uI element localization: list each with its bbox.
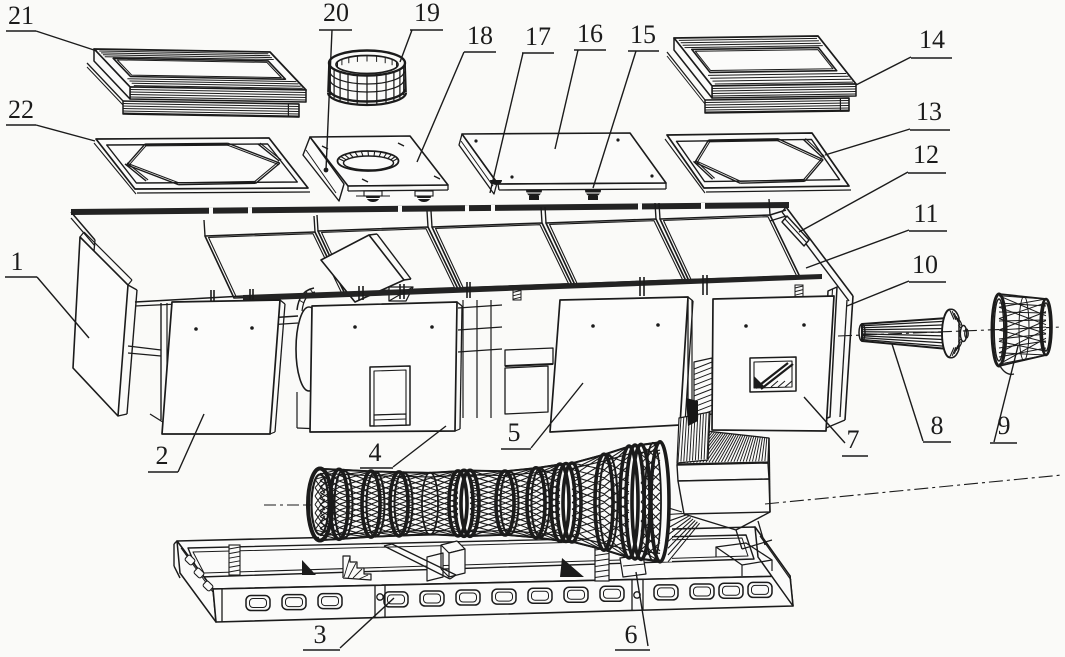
svg-text:10: 10 — [912, 250, 938, 279]
svg-text:21: 21 — [8, 1, 34, 30]
svg-text:18: 18 — [467, 21, 493, 50]
svg-text:9: 9 — [998, 411, 1011, 440]
svg-text:3: 3 — [314, 620, 327, 649]
svg-text:12: 12 — [913, 140, 939, 169]
svg-text:11: 11 — [913, 199, 938, 228]
svg-text:6: 6 — [625, 620, 638, 649]
svg-text:1: 1 — [11, 247, 24, 276]
svg-text:16: 16 — [577, 19, 603, 48]
svg-text:4: 4 — [369, 438, 382, 467]
svg-text:14: 14 — [919, 25, 945, 54]
svg-text:22: 22 — [8, 95, 34, 124]
svg-text:8: 8 — [931, 411, 944, 440]
svg-text:17: 17 — [525, 22, 551, 51]
svg-text:19: 19 — [414, 0, 440, 27]
svg-text:15: 15 — [630, 20, 656, 49]
svg-text:2: 2 — [156, 441, 169, 470]
svg-text:5: 5 — [508, 418, 521, 447]
svg-text:13: 13 — [916, 97, 942, 126]
svg-text:20: 20 — [323, 0, 349, 27]
svg-text:7: 7 — [847, 425, 860, 454]
